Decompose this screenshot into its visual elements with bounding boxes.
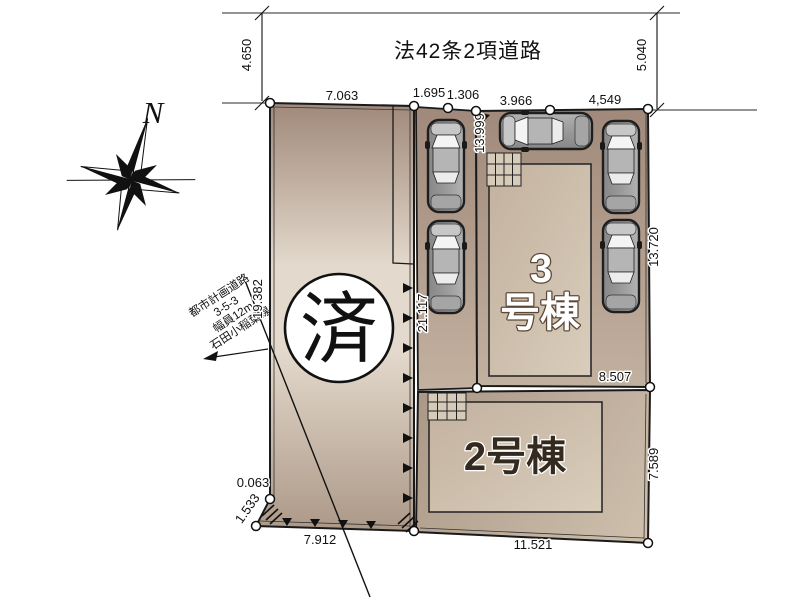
road-label: 法42条2項道路 — [394, 40, 542, 63]
dim-top-2: 1.695 — [413, 85, 446, 100]
dim-top-5: 4,549 — [589, 92, 622, 107]
car-icon — [600, 121, 642, 213]
dim-top-4: 3.966 — [500, 93, 533, 108]
dim-left-edge: 19.382 — [250, 279, 265, 319]
dim-right-lower: 7.589 — [646, 448, 661, 481]
site-plan-svg: 法42条2項道路 4.650 5.040 — [0, 0, 800, 600]
dim-top-3: 1.306 — [447, 87, 480, 102]
car-icon — [425, 120, 467, 212]
planned-road-arrowhead-icon — [203, 351, 218, 361]
site-plan: 法42条2項道路 4.650 5.040 — [0, 0, 800, 600]
car-icon — [600, 220, 642, 312]
dim-boundary: 21.117 — [415, 294, 430, 333]
dim-bottom-right: 11.521 — [514, 537, 553, 552]
car-icon — [500, 110, 592, 152]
dim-top-1: 7.063 — [326, 88, 359, 103]
dim-bottom-left: 7.912 — [304, 532, 337, 547]
building2-label: 2号棟 — [464, 435, 567, 479]
building3-label-number: 3 — [530, 247, 552, 291]
dim-bldg3-parcel-bottom: 8.507 — [599, 369, 632, 384]
stairs-icon — [428, 393, 466, 420]
dim-right-upper: 13.720 — [646, 227, 661, 267]
sold-label: 済 — [300, 285, 378, 373]
car-icon — [425, 221, 467, 313]
building3-label-suffix: 号棟 — [500, 291, 581, 335]
dim-road-right: 5.040 — [634, 39, 649, 72]
dim-corner-sliver: 0.063 — [237, 475, 270, 490]
compass-icon — [58, 102, 208, 246]
planned-road-arrow-line — [214, 349, 268, 357]
dim-road-left: 4.650 — [239, 39, 254, 72]
dim-parking-edge: 13.999 — [472, 113, 487, 153]
stairs-icon — [487, 153, 521, 186]
